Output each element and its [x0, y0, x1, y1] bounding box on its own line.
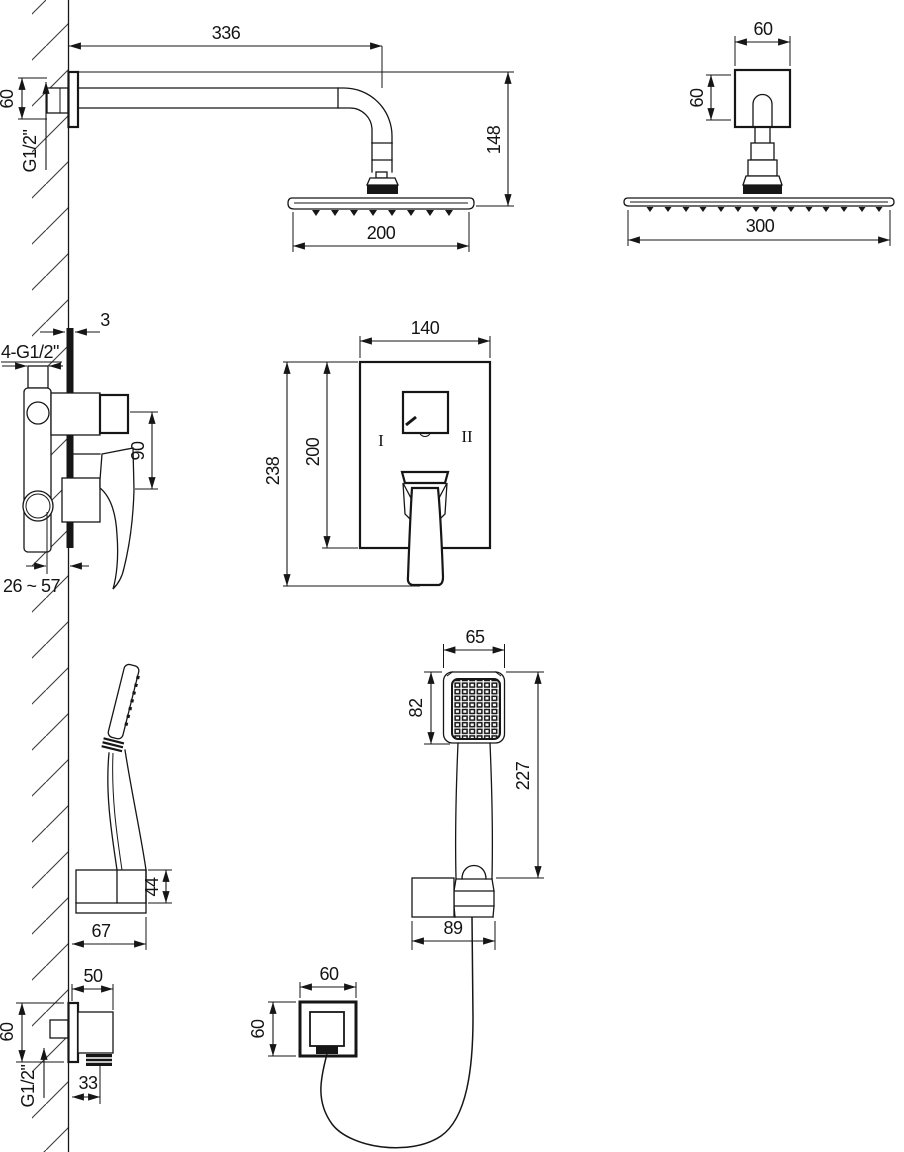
label-position-one: I: [378, 431, 384, 450]
dim-total-length: 227: [513, 761, 533, 790]
mixer-valve-front-view-figure: I II 140 238 200: [263, 318, 490, 586]
dim-head-width-300: 300: [746, 216, 775, 236]
dim-outlet-height-front: 60: [248, 1019, 268, 1039]
wall-outlet-front-figure: 60 60: [248, 917, 473, 1148]
handshower-front-figure: 65 82 227 89: [406, 627, 544, 950]
dim-flange-size: 60: [0, 89, 17, 109]
mixer-valve-side-view-figure: 3 4-G1/2" 90 26 ~ 57: [1, 310, 158, 596]
hose-nut: [86, 1054, 112, 1066]
nozzle-face-plate: [452, 679, 500, 739]
dim-head-height: 82: [406, 698, 426, 718]
in-wall-pipe: [47, 88, 68, 113]
ceiling-flange: [735, 70, 790, 127]
dim-ceiling-flange-height: 60: [687, 88, 707, 108]
ceiling-mounted-overhead-shower-figure: 60 60 300: [624, 19, 894, 246]
label-arm-thread: G1/2": [20, 129, 40, 172]
shower-head-200: [288, 198, 474, 216]
wall-mounted-overhead-shower-figure: 336 60 G1/2" 148 200: [0, 23, 514, 252]
outlet-body-side: [78, 1012, 113, 1053]
wall-flange: [69, 72, 79, 127]
in-wall-outlet-pipe: [50, 1020, 68, 1038]
outlet-hose-nut-front: [316, 1046, 338, 1054]
holder-bracket-front: [412, 878, 454, 917]
cartridge-box: [100, 395, 128, 433]
dim-bracket-width: 89: [443, 918, 463, 938]
handshower-handle-side: [108, 750, 146, 870]
dim-outlet-width-front: 60: [319, 964, 339, 984]
lower-port-circle: [23, 491, 53, 521]
dim-ceiling-flange-width: 60: [753, 19, 773, 39]
handshower-head-side: [102, 663, 143, 752]
dim-total-height: 238: [263, 456, 283, 485]
dim-head-width: 65: [465, 627, 485, 647]
label-connections: 4-G1/2": [1, 342, 59, 362]
dim-holder-height: 44: [142, 877, 162, 897]
dim-install-depth-range: 26 ~ 57: [3, 576, 61, 596]
label-position-two: II: [461, 427, 473, 446]
dim-head-width-200: 200: [367, 223, 396, 243]
dim-drop-height: 148: [484, 125, 504, 154]
mixer-lever-handle-side: [100, 448, 134, 589]
handshower-handle: [454, 743, 494, 917]
upper-port-circle: [27, 402, 49, 424]
ceiling-drop-pipe: [743, 127, 782, 194]
holder-bracket-side: [76, 870, 146, 913]
dim-holder-depth: 67: [91, 921, 111, 941]
outlet-body-front: [310, 1012, 344, 1046]
handshower-in-holder-side-figure: 44 67: [72, 663, 172, 950]
dim-plate-width: 140: [411, 318, 440, 338]
dim-arm-length: 336: [212, 23, 241, 43]
outlet-flange-side: [69, 1003, 79, 1062]
dim-outlet-height-side: 60: [0, 1022, 17, 1042]
technical-drawing-sheet: 336 60 G1/2" 148 200: [0, 0, 904, 1152]
dim-tile-thickness: 3: [100, 310, 110, 330]
dim-outlet-offset: 33: [78, 1073, 98, 1093]
label-outlet-thread: G1/2": [18, 1064, 38, 1107]
shower-arm: [78, 88, 392, 172]
dim-outlet-depth: 50: [83, 966, 103, 986]
dim-plate-height: 200: [303, 437, 323, 466]
shower-head-connector: [367, 172, 398, 194]
drawing-canvas: 336 60 G1/2" 148 200: [0, 0, 904, 1152]
dim-port-spacing: 90: [128, 441, 148, 461]
shower-head-300: [624, 198, 894, 212]
diverter-window: [403, 392, 448, 433]
